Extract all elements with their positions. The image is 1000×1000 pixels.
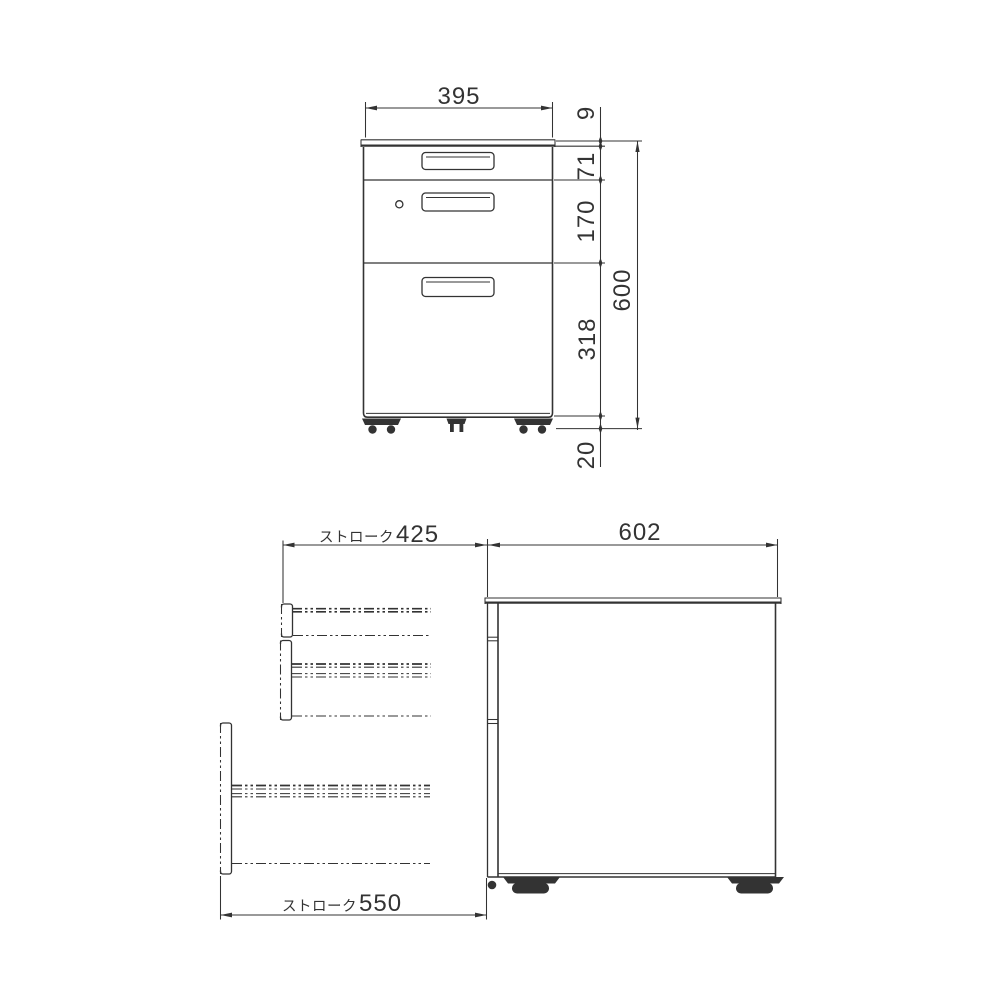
front-elevation-view bbox=[361, 140, 555, 434]
width-dimension-395: 395 bbox=[366, 83, 553, 138]
caster-left bbox=[362, 419, 401, 426]
lower-stroke-prefix-label: ストローク bbox=[282, 898, 357, 915]
side-caster-rear bbox=[727, 877, 784, 884]
side-cabinet-body bbox=[488, 604, 776, 878]
drawer1-height-label: 71 bbox=[573, 152, 600, 181]
side-caster-front bbox=[503, 877, 560, 884]
side-section-view bbox=[221, 598, 785, 894]
side-view-dimensions: ストローク 425 602 ストローク 550 bbox=[221, 519, 778, 920]
drawer2-handle bbox=[422, 193, 494, 211]
drawer3-handle bbox=[422, 278, 494, 297]
lock-keyhole-icon bbox=[396, 201, 403, 208]
drawer-slide-rails bbox=[232, 609, 431, 864]
upper-stroke-value-label: 425 bbox=[396, 521, 439, 548]
lower-stroke-value-label: 550 bbox=[359, 890, 402, 917]
front-casters bbox=[362, 419, 553, 434]
drawer2-height-label: 170 bbox=[573, 199, 600, 242]
total-height-label: 600 bbox=[609, 268, 636, 311]
drawer-unit-dimension-drawing: 395 9 71 170 318 20 bbox=[0, 0, 1000, 1000]
extended-drawer3-panel bbox=[221, 723, 232, 874]
extended-drawer1-panel bbox=[282, 604, 293, 637]
total-height-dimension-600: 600 bbox=[609, 141, 640, 430]
side-caster-wheel-dot bbox=[488, 881, 497, 890]
front-width-label: 395 bbox=[437, 83, 480, 110]
lower-stroke-dimension-550: ストローク 550 bbox=[221, 876, 487, 920]
front-top-panel bbox=[361, 140, 555, 148]
depth-label: 602 bbox=[618, 519, 661, 546]
extended-drawer2-panel bbox=[281, 641, 292, 721]
front-view-dimensions: 395 9 71 170 318 20 bbox=[366, 83, 643, 469]
caster-right bbox=[514, 419, 553, 426]
drawer3-height-label: 318 bbox=[574, 317, 601, 360]
upper-stroke-prefix-label: ストローク bbox=[319, 529, 394, 546]
side-casters bbox=[488, 877, 784, 894]
caster-height-label: 20 bbox=[573, 441, 600, 470]
side-top-panel bbox=[485, 598, 781, 605]
upper-dimension-line: ストローク 425 602 bbox=[283, 519, 778, 603]
top-thickness-label: 9 bbox=[573, 106, 600, 120]
drawer1-handle bbox=[422, 153, 494, 170]
caster-center bbox=[447, 419, 467, 425]
technical-drawing-page: 395 9 71 170 318 20 bbox=[0, 0, 1000, 1000]
segment-height-dimension-line: 9 71 170 318 20 bbox=[573, 106, 602, 470]
